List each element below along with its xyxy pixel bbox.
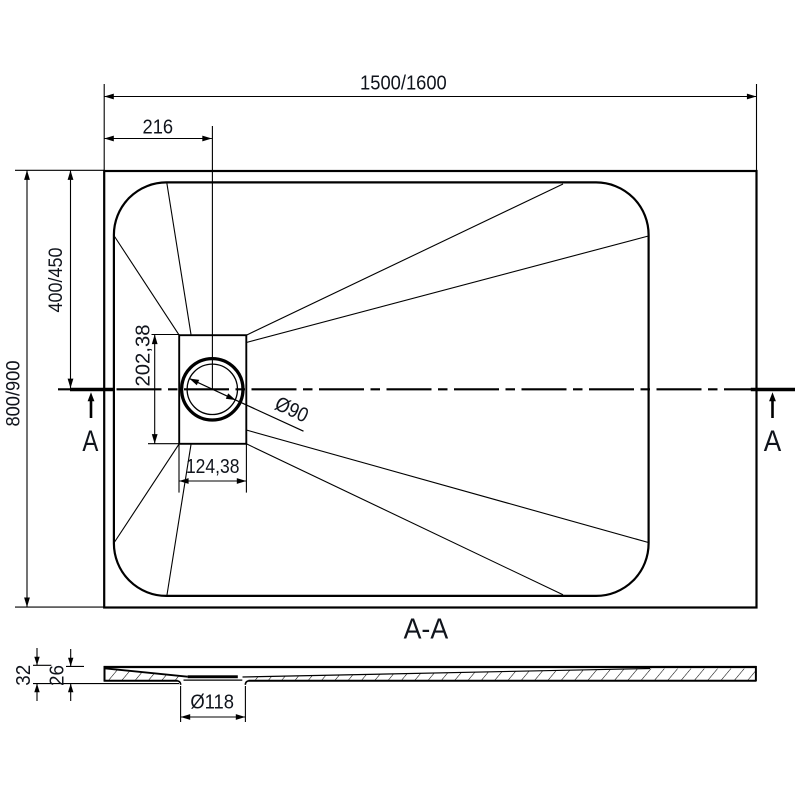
- svg-text:A: A: [82, 425, 98, 458]
- svg-text:1500/1600: 1500/1600: [360, 71, 447, 94]
- svg-text:800/900: 800/900: [3, 360, 25, 426]
- svg-text:400/450: 400/450: [45, 247, 67, 312]
- svg-text:A: A: [764, 425, 782, 458]
- svg-text:26: 26: [46, 665, 69, 686]
- svg-text:Ø90: Ø90: [271, 392, 312, 427]
- svg-text:32: 32: [12, 665, 35, 686]
- svg-text:202,38: 202,38: [132, 325, 155, 387]
- svg-text:124,38: 124,38: [186, 455, 240, 478]
- svg-text:A-A: A-A: [404, 613, 449, 645]
- svg-text:216: 216: [143, 115, 174, 138]
- svg-text:Ø118: Ø118: [190, 690, 234, 713]
